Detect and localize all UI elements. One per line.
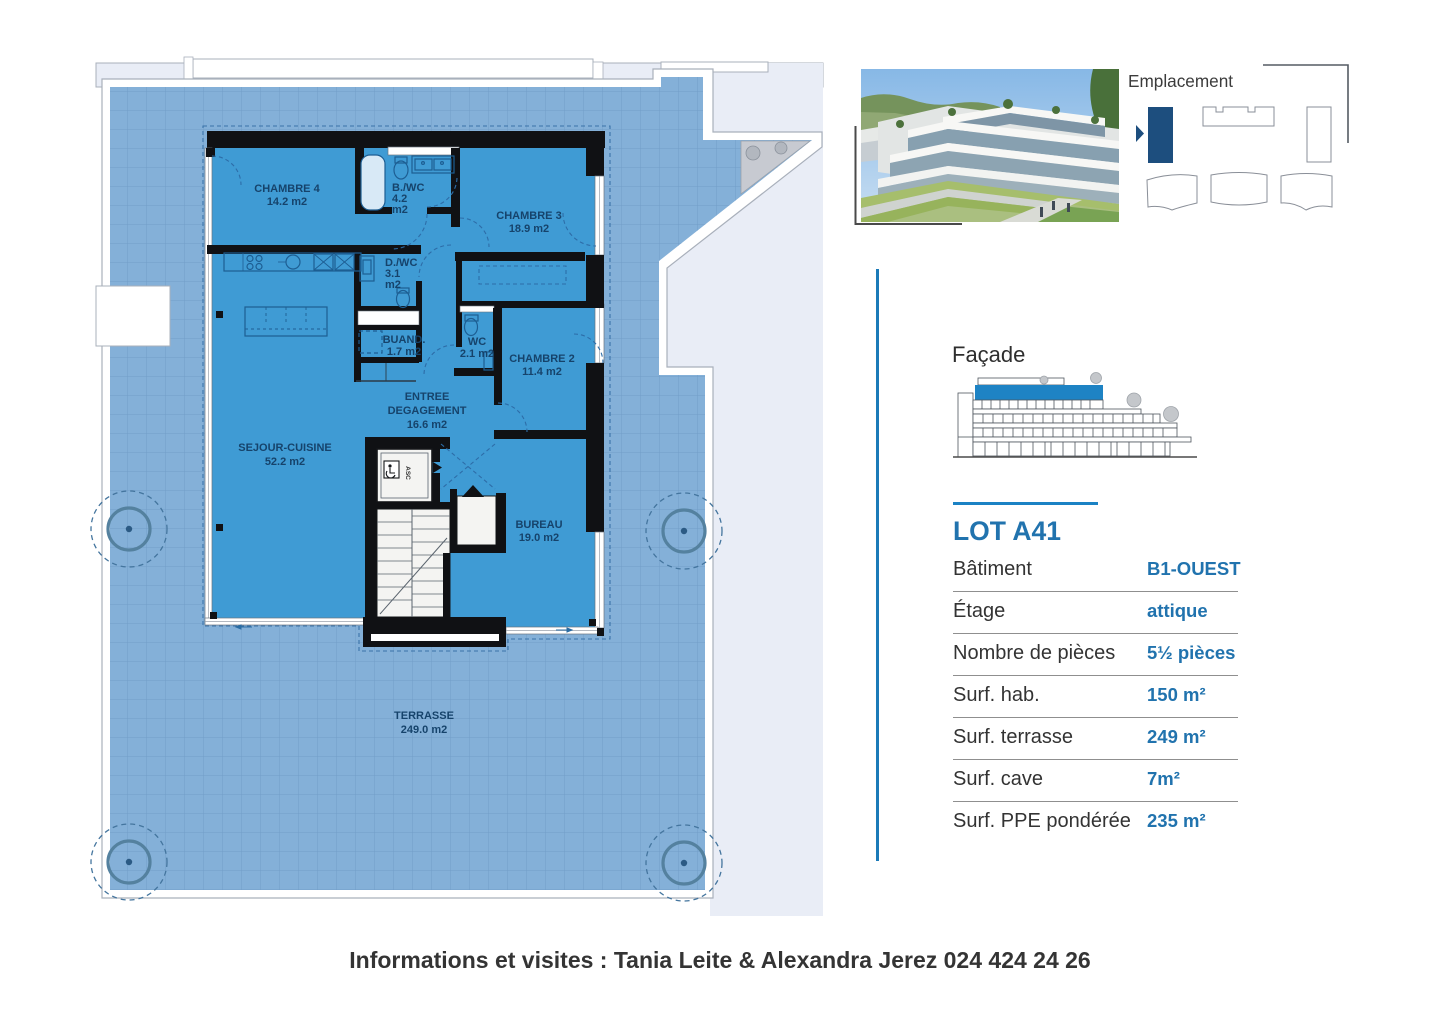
svg-text:249.0 m2: 249.0 m2 <box>401 724 447 736</box>
svg-text:ASC: ASC <box>404 466 411 480</box>
svg-text:BUAND.: BUAND. <box>383 334 426 346</box>
svg-text:CHAMBRE 3: CHAMBRE 3 <box>496 210 561 222</box>
svg-text:19.0 m2: 19.0 m2 <box>519 532 559 544</box>
svg-text:14.2 m2: 14.2 m2 <box>267 196 307 208</box>
svg-text:DEGAGEMENT: DEGAGEMENT <box>388 405 467 417</box>
svg-text:WC: WC <box>468 336 486 348</box>
svg-text:TERRASSE: TERRASSE <box>394 710 454 722</box>
svg-text:18.9 m2: 18.9 m2 <box>509 223 549 235</box>
svg-text:ENTREE: ENTREE <box>405 391 450 403</box>
svg-text:CHAMBRE 4: CHAMBRE 4 <box>254 183 320 195</box>
svg-text:CHAMBRE 2: CHAMBRE 2 <box>509 353 574 365</box>
svg-text:1.7 m2: 1.7 m2 <box>387 346 421 358</box>
svg-text:m2: m2 <box>385 279 401 291</box>
svg-text:SEJOUR-CUISINE: SEJOUR-CUISINE <box>238 442 332 454</box>
svg-text:52.2 m2: 52.2 m2 <box>265 456 305 468</box>
svg-text:2.1 m2: 2.1 m2 <box>460 348 494 360</box>
svg-text:11.4 m2: 11.4 m2 <box>522 366 562 378</box>
svg-text:16.6 m2: 16.6 m2 <box>407 419 447 431</box>
svg-text:BUREAU: BUREAU <box>515 519 562 531</box>
svg-text:m2: m2 <box>392 204 408 216</box>
